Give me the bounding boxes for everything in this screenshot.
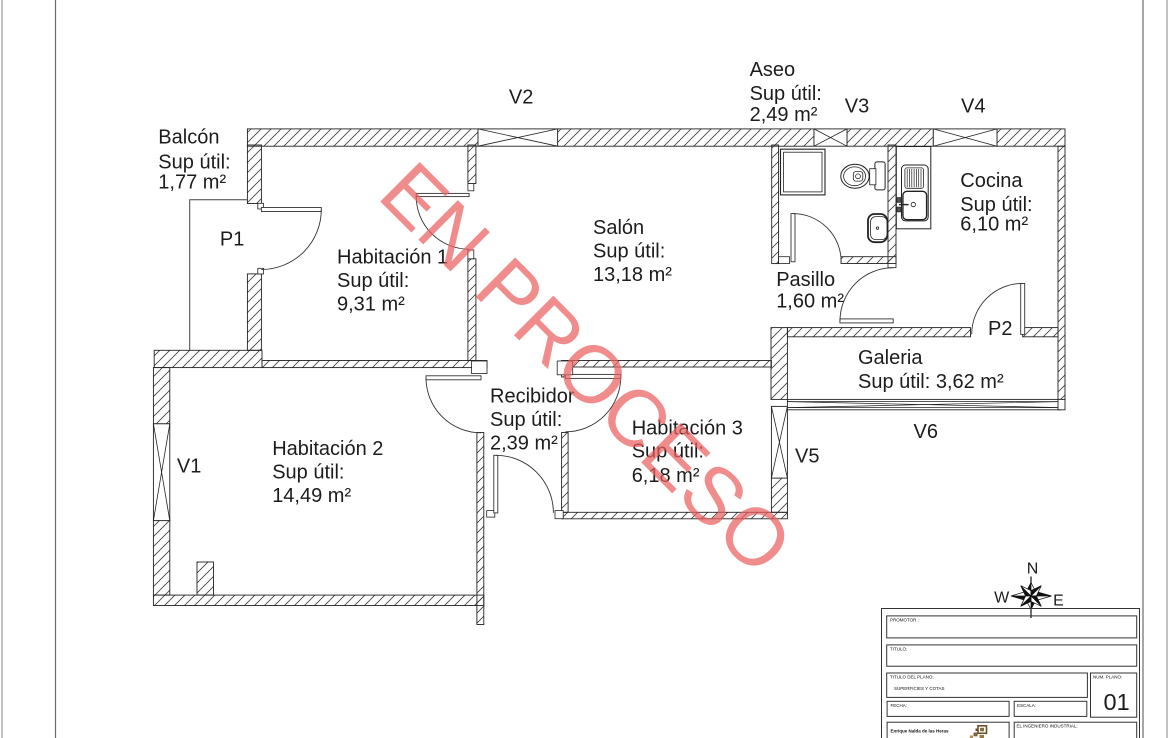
svg-text:9,31 m²: 9,31 m² [337,294,405,316]
svg-text:1,77 m²: 1,77 m² [158,171,226,193]
svg-text:TITULO DEL PLANO:: TITULO DEL PLANO: [890,675,934,680]
svg-text:01: 01 [1104,689,1130,715]
svg-text:E: E [1053,593,1064,610]
svg-text:V6: V6 [914,421,938,443]
svg-text:Galeria: Galeria [858,347,923,369]
svg-text:Pasillo: Pasillo [776,269,835,291]
svg-text:ESCALA:: ESCALA: [1017,703,1036,708]
svg-text:13,18 m²: 13,18 m² [593,264,672,286]
svg-text:V3: V3 [845,96,869,118]
svg-text:SUPERFICIES Y COTAS: SUPERFICIES Y COTAS [894,686,945,691]
svg-text:EL INGENIERO INDUSTRIAL:: EL INGENIERO INDUSTRIAL: [1017,724,1078,729]
svg-text:Sup útil:: Sup útil: [337,270,409,292]
svg-text:1,60 m²: 1,60 m² [776,290,844,312]
svg-text:NUM. PLANO:: NUM. PLANO: [1093,675,1122,680]
svg-text:EN PROCESO: EN PROCESO [363,146,809,592]
svg-text:14,49 m²: 14,49 m² [272,485,351,507]
svg-text:TITULO:: TITULO: [890,647,907,652]
svg-text:N: N [1027,561,1039,578]
svg-text:Habitación 2: Habitación 2 [272,438,383,460]
svg-text:V4: V4 [961,96,985,118]
svg-text:FECHA:: FECHA: [891,703,908,708]
svg-text:Enrique Nalda de las Heras: Enrique Nalda de las Heras [891,729,950,734]
svg-text:Cocina: Cocina [960,170,1023,192]
svg-text:V5: V5 [795,446,819,468]
svg-text:P1: P1 [220,229,244,251]
svg-text:Salón: Salón [593,217,644,239]
svg-text:2,39 m²: 2,39 m² [490,433,558,455]
svg-text:Sup útil:: Sup útil: [593,240,665,262]
svg-text:Sup útil: 3,62 m²: Sup útil: 3,62 m² [858,371,1004,393]
svg-text:PROMOTOR :: PROMOTOR : [890,618,919,623]
svg-text:P2: P2 [988,318,1012,340]
svg-text:2,49 m²: 2,49 m² [750,104,818,126]
svg-text:Sup útil:: Sup útil: [272,461,344,483]
svg-text:Sup útil:: Sup útil: [750,83,822,105]
svg-text:V1: V1 [177,456,201,478]
svg-text:W: W [994,590,1010,607]
svg-text:6,10 m²: 6,10 m² [960,213,1028,235]
svg-text:Sup útil:: Sup útil: [158,151,230,173]
svg-text:Balcón: Balcón [158,127,219,149]
svg-text:V2: V2 [509,87,533,109]
svg-text:Aseo: Aseo [750,59,796,81]
svg-text:Sup útil:: Sup útil: [490,409,562,431]
